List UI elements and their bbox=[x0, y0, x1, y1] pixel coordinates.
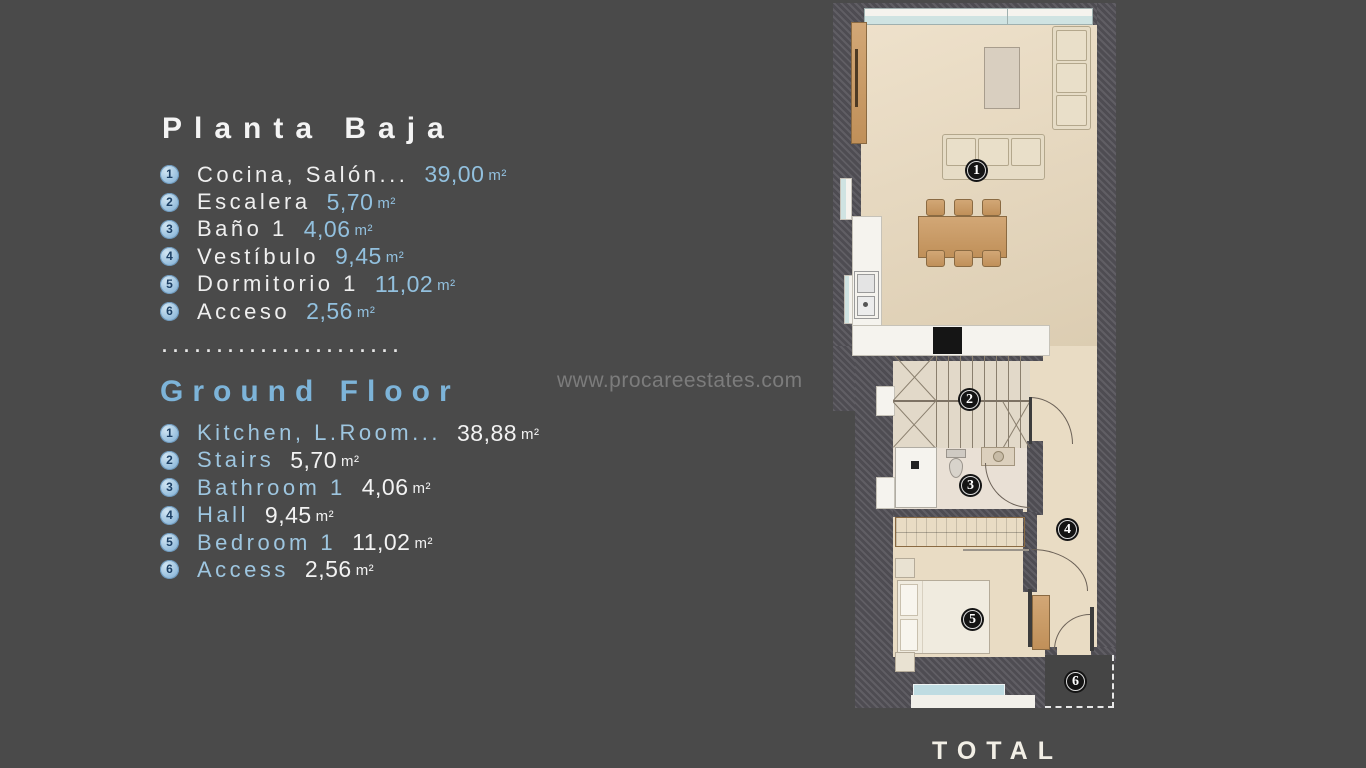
item-number-badge: 3 bbox=[160, 220, 179, 239]
sofa-cushion bbox=[1011, 138, 1041, 166]
bed-fold-line bbox=[922, 581, 923, 653]
pillow bbox=[900, 584, 918, 616]
marker-access: 6 bbox=[1064, 670, 1087, 693]
item-number-badge: 2 bbox=[160, 451, 179, 470]
room-label: Dormitorio 1 bbox=[197, 271, 359, 297]
item-number-badge: 1 bbox=[160, 165, 179, 184]
dining-chair bbox=[982, 199, 1001, 216]
room-label: Hall bbox=[197, 502, 249, 528]
room-area: 2,56m² bbox=[305, 556, 374, 583]
cooktop bbox=[933, 327, 962, 354]
cabinet-handle bbox=[855, 49, 858, 107]
item-number-badge: 5 bbox=[160, 533, 179, 552]
dotted-separator: ...................... bbox=[162, 341, 760, 353]
item-number-badge: 6 bbox=[160, 302, 179, 321]
window-bottom-sill bbox=[911, 695, 1035, 708]
floor-plan: 1 2 3 4 5 6 bbox=[833, 3, 1117, 708]
room-area: 9,45m² bbox=[335, 243, 404, 270]
item-number-badge: 4 bbox=[160, 247, 179, 266]
dresser bbox=[1032, 595, 1050, 650]
list-item: 2 Escalera 5,70m² bbox=[160, 188, 760, 215]
room-label: Bedroom 1 bbox=[197, 530, 336, 556]
room-area: 4,06m² bbox=[304, 216, 373, 243]
list-item: 1 Kitchen, L.Room... 38,88m² bbox=[160, 419, 760, 446]
shower-drain bbox=[911, 461, 919, 469]
vanity-basin bbox=[993, 451, 1004, 462]
list-item: 5 Dormitorio 1 11,02m² bbox=[160, 271, 760, 298]
item-number-badge: 4 bbox=[160, 506, 179, 525]
window-top bbox=[864, 8, 1093, 25]
planta-baja-list: 1 Cocina, Salón... 39,00m² 2 Escalera 5,… bbox=[160, 161, 760, 325]
list-item: 6 Acceso 2,56m² bbox=[160, 298, 760, 325]
room-label: Escalera bbox=[197, 189, 311, 215]
room-area: 38,88m² bbox=[457, 420, 540, 447]
room-area: 11,02m² bbox=[375, 271, 456, 298]
wardrobe bbox=[895, 517, 1025, 547]
room-area: 11,02m² bbox=[352, 529, 433, 556]
wall-right bbox=[1097, 3, 1116, 653]
watermark: www.procareestates.com bbox=[557, 369, 803, 393]
list-item: 5 Bedroom 1 11,02m² bbox=[160, 529, 760, 556]
marker-bedroom: 5 bbox=[961, 608, 984, 631]
kitchen-sink bbox=[854, 271, 879, 319]
nightstand bbox=[895, 558, 915, 578]
nightstand bbox=[895, 652, 915, 672]
room-area: 39,00m² bbox=[424, 161, 507, 188]
window-left-1 bbox=[840, 178, 852, 220]
stair-winder-line bbox=[893, 400, 937, 448]
item-number-badge: 6 bbox=[160, 560, 179, 579]
marker-living-room: 1 bbox=[965, 159, 988, 182]
ground-floor-list: 1 Kitchen, L.Room... 38,88m² 2 Stairs 5,… bbox=[160, 419, 760, 583]
marker-bathroom: 3 bbox=[959, 474, 982, 497]
sofa-cushion bbox=[1056, 30, 1087, 61]
room-label: Bathroom 1 bbox=[197, 475, 346, 501]
wall-bath-line bbox=[893, 509, 1023, 517]
dining-chair bbox=[954, 199, 973, 216]
total-label: TOTAL bbox=[932, 737, 1063, 766]
sofa-cushion bbox=[1056, 95, 1087, 126]
list-item: 6 Access 2,56m² bbox=[160, 556, 760, 583]
room-label: Access bbox=[197, 557, 289, 583]
room-label: Vestíbulo bbox=[197, 244, 319, 270]
entry-door-leaf bbox=[1090, 607, 1094, 651]
sofa-bottom bbox=[942, 134, 1045, 180]
window-divider bbox=[1007, 9, 1008, 24]
item-number-badge: 3 bbox=[160, 478, 179, 497]
room-label: Kitchen, L.Room... bbox=[197, 420, 441, 446]
sofa-right bbox=[1052, 26, 1091, 130]
legend-panel: Planta Baja 1 Cocina, Salón... 39,00m² 2… bbox=[160, 112, 760, 584]
shower bbox=[895, 447, 937, 508]
dining-chair bbox=[982, 250, 1001, 267]
cabinet bbox=[851, 22, 867, 144]
marker-hall: 4 bbox=[1056, 518, 1079, 541]
list-item: 3 Bathroom 1 4,06m² bbox=[160, 474, 760, 501]
wardrobe-shelf-line bbox=[896, 532, 1024, 533]
item-number-badge: 2 bbox=[160, 193, 179, 212]
room-label: Stairs bbox=[197, 447, 274, 473]
sofa-cushion bbox=[1056, 63, 1087, 94]
list-item: 3 Baño 1 4,06m² bbox=[160, 216, 760, 243]
dining-chair bbox=[926, 199, 945, 216]
list-item: 4 Vestíbulo 9,45m² bbox=[160, 243, 760, 270]
dining-chair bbox=[926, 250, 945, 267]
room-label: Cocina, Salón... bbox=[197, 162, 408, 188]
list-item: 1 Cocina, Salón... 39,00m² bbox=[160, 161, 760, 188]
bedroom-door-leaf bbox=[1028, 589, 1032, 647]
room-area: 2,56m² bbox=[306, 298, 375, 325]
pillow bbox=[900, 619, 918, 651]
wardrobe-rail bbox=[963, 549, 1029, 551]
dining-chair bbox=[954, 250, 973, 267]
marker-stairs: 2 bbox=[958, 388, 981, 411]
wall-niche-2 bbox=[876, 477, 895, 509]
title-planta-baja: Planta Baja bbox=[162, 112, 760, 146]
room-label: Baño 1 bbox=[197, 216, 288, 242]
room-area: 5,70m² bbox=[327, 189, 396, 216]
coffee-table bbox=[984, 47, 1020, 109]
room-area: 9,45m² bbox=[265, 502, 334, 529]
toilet-tank bbox=[946, 449, 966, 458]
stairs-door-leaf bbox=[1029, 397, 1032, 444]
sink-faucet bbox=[863, 302, 868, 307]
room-area: 4,06m² bbox=[362, 474, 431, 501]
list-item: 4 Hall 9,45m² bbox=[160, 502, 760, 529]
list-item: 2 Stairs 5,70m² bbox=[160, 447, 760, 474]
kitchen-appliance bbox=[857, 274, 875, 293]
room-area: 5,70m² bbox=[290, 447, 359, 474]
window-glass bbox=[865, 16, 1092, 24]
room-label: Acceso bbox=[197, 299, 290, 325]
item-number-badge: 1 bbox=[160, 424, 179, 443]
item-number-badge: 5 bbox=[160, 275, 179, 294]
